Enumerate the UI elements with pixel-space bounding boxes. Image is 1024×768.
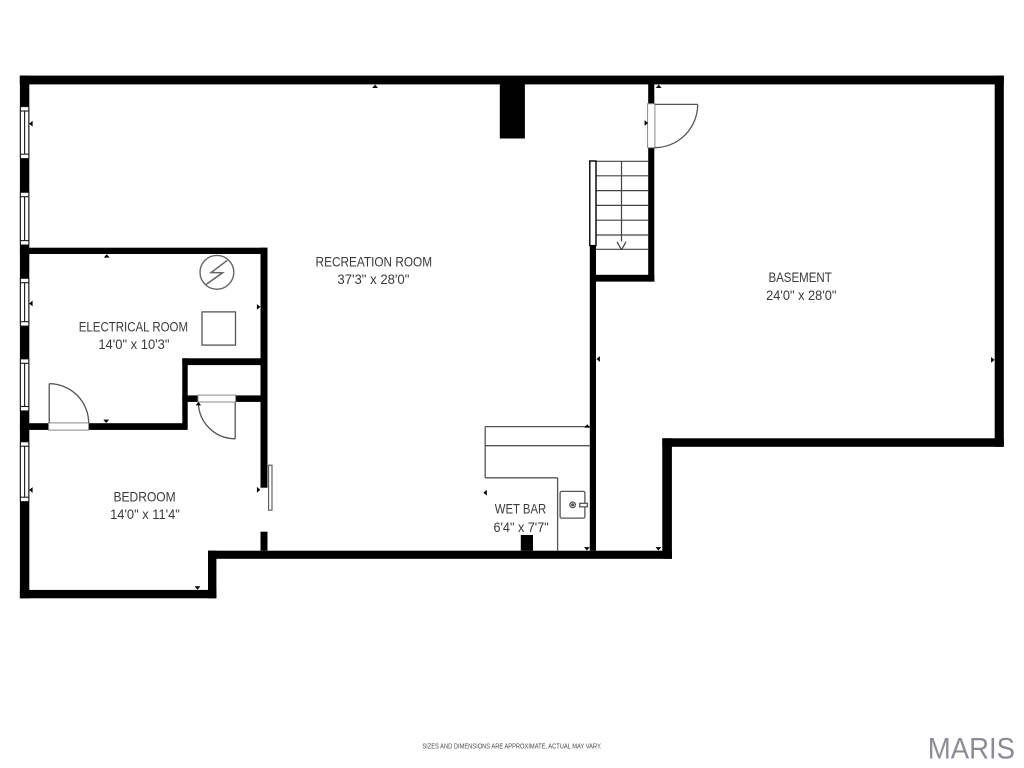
svg-text:14'0" x 11'4": 14'0" x 11'4" xyxy=(110,506,180,522)
svg-text:24'0" x 28'0": 24'0" x 28'0" xyxy=(766,287,836,303)
svg-text:RECREATION ROOM: RECREATION ROOM xyxy=(316,254,433,270)
svg-text:ELECTRICAL ROOM: ELECTRICAL ROOM xyxy=(79,318,188,334)
svg-text:SIZES AND DIMENSIONS ARE APPRO: SIZES AND DIMENSIONS ARE APPROXIMATE, AC… xyxy=(422,741,601,750)
svg-text:WET BAR: WET BAR xyxy=(495,501,546,517)
svg-text:14'0" x 10'3": 14'0" x 10'3" xyxy=(98,336,169,352)
svg-text:BEDROOM: BEDROOM xyxy=(114,488,176,504)
svg-text:37'3" x 28'0": 37'3" x 28'0" xyxy=(337,271,409,287)
svg-text:6'4" x 7'7": 6'4" x 7'7" xyxy=(494,519,549,535)
svg-text:BASEMENT: BASEMENT xyxy=(768,269,832,285)
svg-text:MARIS: MARIS xyxy=(928,733,1015,766)
